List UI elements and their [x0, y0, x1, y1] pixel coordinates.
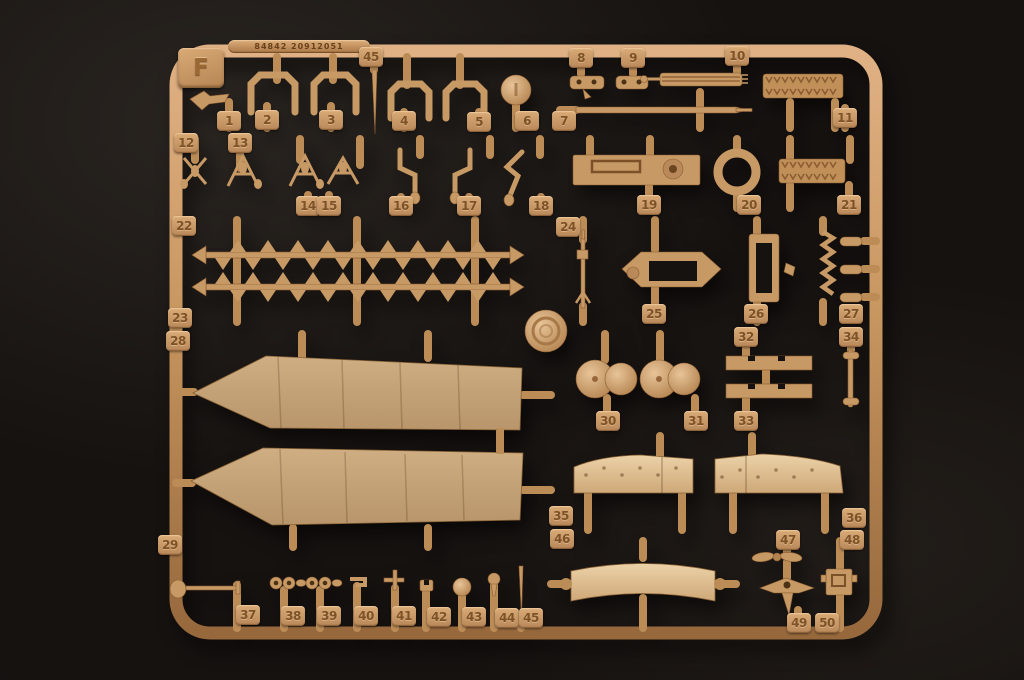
part-number-tab: 11 — [833, 108, 857, 128]
sprue-stubs — [176, 57, 876, 628]
mold-code-plaque: 84842 20912051 — [228, 40, 370, 53]
part-19-plate — [573, 155, 700, 185]
part-34-bar — [843, 350, 859, 407]
part-number-tab: 45 — [359, 47, 383, 67]
parts-48-50-box — [821, 569, 857, 595]
part-number-tab: 28 — [166, 331, 190, 351]
part-49-mount — [760, 578, 814, 615]
part-number-tab: 13 — [228, 133, 252, 153]
part-number-tab: 1 — [217, 111, 241, 131]
part-number-tab: 49 — [787, 613, 811, 633]
part-number-tab: 29 — [158, 535, 182, 555]
part-number-tab: 42 — [427, 607, 451, 627]
part-number-tab: 23 — [168, 308, 192, 328]
part-number-tab: 5 — [467, 112, 491, 132]
part-25-hatch-plate — [622, 252, 721, 287]
part-number-tab: 15 — [317, 196, 341, 216]
part-number-tab: 33 — [734, 411, 758, 431]
parts-28-29-panels — [191, 356, 523, 525]
part-number-tab: 7 — [552, 111, 576, 131]
part-number-tab: 2 — [255, 110, 279, 130]
part-number-tab: 34 — [839, 327, 863, 347]
part-number-tab: 16 — [389, 196, 413, 216]
sprue-photo: 84842 20912051 F 12345678910111213141516… — [0, 0, 1024, 680]
wire-beads — [180, 162, 347, 189]
part-number-tab: 45 — [519, 608, 543, 628]
part-number-tab: 4 — [392, 111, 416, 131]
part-number-tab: 38 — [281, 606, 305, 626]
part-number-tab: 32 — [734, 327, 758, 347]
part-24-gun — [576, 230, 590, 308]
part-number-tab: 37 — [236, 605, 260, 625]
part-27-zigzag — [823, 232, 833, 294]
part-10-tube-bundle — [641, 73, 749, 86]
part-number-tab: 19 — [637, 195, 661, 215]
part-number-tab: 17 — [457, 196, 481, 216]
part-number-tab: 36 — [842, 508, 866, 528]
part-number-tab: 44 — [495, 608, 519, 628]
part-number-tab: 50 — [815, 613, 839, 633]
part-number-tab: 9 — [621, 48, 645, 68]
part-number-tab: 12 — [174, 133, 198, 153]
part-20-ring — [718, 153, 756, 191]
part-number-tab: 47 — [776, 530, 800, 550]
part-number-tab: 35 — [549, 506, 573, 526]
part-37-shovel — [170, 580, 186, 598]
part-43-disc — [453, 578, 471, 596]
part-number-tab: 31 — [684, 411, 708, 431]
part-7-rod — [576, 107, 748, 113]
part-number-tab: 6 — [515, 111, 539, 131]
parts-35-36-fenders — [574, 454, 843, 493]
part-number-tab: 43 — [462, 607, 486, 627]
part-number-tab: 25 — [642, 304, 666, 324]
sprue-letter: F — [193, 55, 209, 81]
part-number-tab: 3 — [319, 110, 343, 130]
part-number-tab: 18 — [529, 196, 553, 216]
part-number-tab: 48 — [840, 530, 864, 550]
part-number-tab: 41 — [392, 606, 416, 626]
sprue-rails — [176, 51, 876, 633]
part-number-tab: 40 — [354, 606, 378, 626]
part-number-tab: 26 — [744, 304, 768, 324]
part-number-tab: 27 — [839, 304, 863, 324]
part-number-tab: 21 — [837, 195, 861, 215]
part-number-tab: 22 — [172, 216, 196, 236]
parts-30-31-domes — [576, 360, 700, 398]
part-number-tab: 30 — [596, 411, 620, 431]
part-number-tab: 8 — [569, 48, 593, 68]
parts-2-5-clamps — [251, 75, 484, 118]
mold-code-text: 84842 20912051 — [254, 42, 343, 51]
sprue-center-disc — [525, 310, 567, 352]
parts-12-15-wires — [184, 156, 358, 186]
part-47-propeller — [751, 551, 802, 563]
sprue-letter-tab: F — [178, 48, 224, 88]
part-number-tab: 10 — [725, 46, 749, 66]
part-number-tab: 20 — [737, 195, 761, 215]
part-45-antenna-top — [372, 70, 377, 134]
part-number-tab: 24 — [556, 217, 580, 237]
part-number-tab: 46 — [550, 529, 574, 549]
part-1-bracket — [190, 91, 229, 110]
part-8 — [570, 76, 604, 89]
sprue-graphic — [0, 0, 1024, 680]
part-number-tab: 39 — [317, 606, 341, 626]
part-26-frame — [749, 234, 795, 302]
